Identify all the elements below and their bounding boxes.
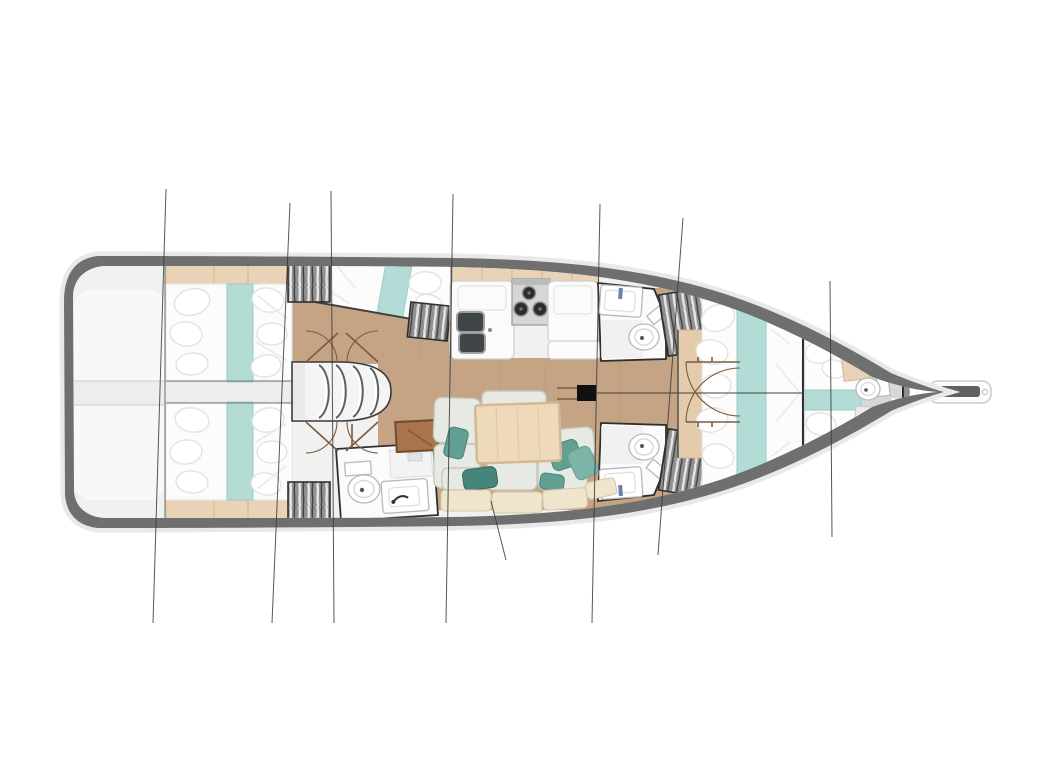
galley-counter-right bbox=[548, 281, 598, 343]
forestay-fitting bbox=[982, 389, 987, 394]
teal-runner bbox=[227, 284, 253, 382]
washbasin bbox=[599, 285, 643, 318]
pillow bbox=[257, 441, 287, 463]
faucet bbox=[618, 485, 623, 496]
interior bbox=[60, 244, 950, 530]
saloon-table bbox=[475, 403, 561, 464]
lower-aft-cabin bbox=[166, 402, 292, 522]
companionway-stairs bbox=[292, 362, 391, 421]
teal-runner bbox=[227, 402, 253, 500]
faucet bbox=[618, 288, 623, 299]
hanging-locker bbox=[407, 302, 450, 341]
mast bbox=[577, 385, 596, 401]
upper-forward-head bbox=[598, 283, 668, 361]
washbasin bbox=[381, 478, 429, 513]
stairs-landing bbox=[293, 364, 305, 419]
galley-counter-return bbox=[548, 341, 600, 359]
galley-faucet bbox=[488, 328, 492, 332]
yacht-floorplan bbox=[0, 0, 1038, 778]
lower-day-head bbox=[336, 443, 438, 521]
pillow bbox=[409, 271, 442, 294]
floorplan-canvas bbox=[0, 0, 1038, 778]
shower-panel bbox=[389, 448, 432, 478]
upper-aft-cabin bbox=[166, 262, 292, 382]
teal-runner bbox=[805, 390, 861, 410]
galley-sink bbox=[459, 333, 485, 353]
aft-corridor bbox=[72, 381, 294, 405]
galley-sink bbox=[457, 312, 484, 332]
pillow bbox=[257, 323, 287, 345]
